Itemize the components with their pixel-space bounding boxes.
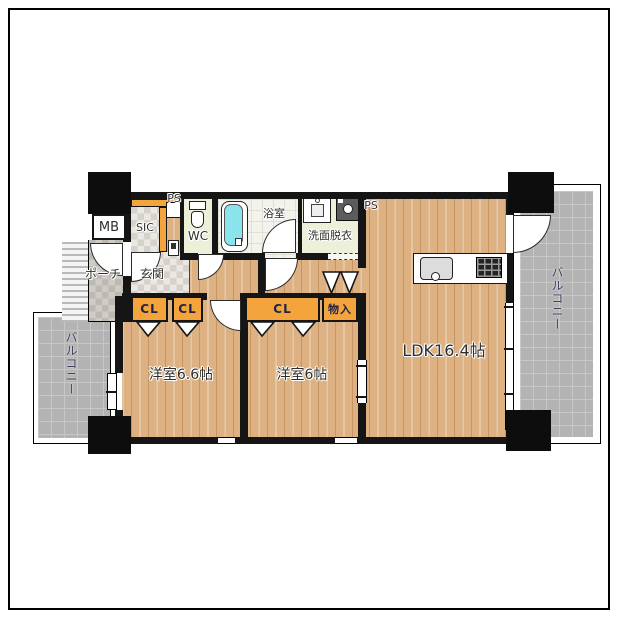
meter-box-label: MB	[99, 220, 119, 235]
wall-divider-ldk-lower	[358, 403, 366, 437]
balcony-right-label: バルコニー	[550, 266, 564, 374]
wc-label: WC	[184, 229, 212, 243]
ps-top-label: PS	[159, 192, 189, 205]
wc-hand-basin-inner	[171, 243, 176, 249]
storage-box: 物入	[322, 296, 358, 322]
exterior-hatch	[62, 242, 88, 322]
pillar-bottom-left	[88, 416, 131, 454]
toilet-bowl	[191, 211, 204, 228]
wall-entrance-b	[123, 276, 131, 322]
closet3-bifold-icon-a	[250, 321, 275, 337]
vanity-basin	[311, 204, 324, 217]
wall-wc-bottom	[184, 253, 198, 260]
storage-bifold-icon	[322, 271, 359, 295]
closet3-bifold-icon-b	[291, 321, 316, 337]
bath-label: 浴室	[252, 205, 296, 221]
bedroom1-window	[107, 373, 117, 410]
pillar-top-left	[88, 172, 131, 214]
entrance-door-opening	[123, 242, 131, 276]
closet2-box: CL	[172, 296, 203, 322]
wall-bath-bottom	[218, 253, 262, 260]
closet1-label: CL	[140, 302, 158, 316]
wall-wc-bath	[212, 192, 218, 260]
entrance-label: 玄関	[140, 265, 164, 282]
wall-bottom-c	[357, 437, 513, 444]
meter-box: MB	[92, 214, 126, 240]
washroom-open-threshold	[328, 253, 358, 260]
washroom-label: 洗面脱衣	[300, 227, 360, 243]
bedroom1-bottom-window	[218, 437, 235, 444]
closet1-bifold-icon	[136, 321, 161, 337]
closet3-label: CL	[273, 302, 291, 316]
wall-corridor-stub	[258, 253, 265, 293]
wall-bottom-b	[235, 437, 335, 444]
bathtub-drain	[235, 238, 242, 246]
closet2-bifold-icon	[175, 321, 200, 337]
ps-right-label: PS	[356, 199, 386, 212]
sic-label: SIC	[129, 221, 161, 234]
vanity-sink	[303, 196, 331, 223]
pillar-bottom-right	[506, 410, 551, 451]
wall-bath-washroom	[298, 192, 302, 258]
wall-divider-ldk-upper	[358, 296, 366, 360]
closet2-label: CL	[178, 302, 196, 316]
floorplan-canvas: バルコニー バルコニー	[0, 0, 620, 620]
closet3-box: CL	[245, 296, 320, 322]
balcony-left-label: バルコニー	[64, 331, 78, 426]
bathtub	[221, 201, 248, 252]
wc-hand-basin	[168, 240, 179, 256]
porch-label: ポーチ	[85, 265, 121, 282]
sliding-partition	[357, 360, 367, 403]
storage-label: 物入	[328, 301, 352, 317]
wall-left-upper	[115, 296, 123, 373]
toilet-tank	[189, 201, 206, 210]
bedroom2-bottom-window	[335, 437, 357, 444]
wall-washroom-bottom	[296, 253, 328, 260]
bedroom1-label: 洋室6.6帖	[126, 364, 236, 384]
kitchen-faucet	[431, 272, 440, 281]
washer-drum	[343, 204, 353, 214]
bedroom2-label: 洋室6帖	[247, 364, 357, 384]
ldk-label: LDK16.4帖	[374, 337, 514, 361]
pillar-top-right	[508, 172, 554, 213]
closet1-box: CL	[131, 296, 168, 322]
kitchen-stove	[476, 257, 502, 278]
